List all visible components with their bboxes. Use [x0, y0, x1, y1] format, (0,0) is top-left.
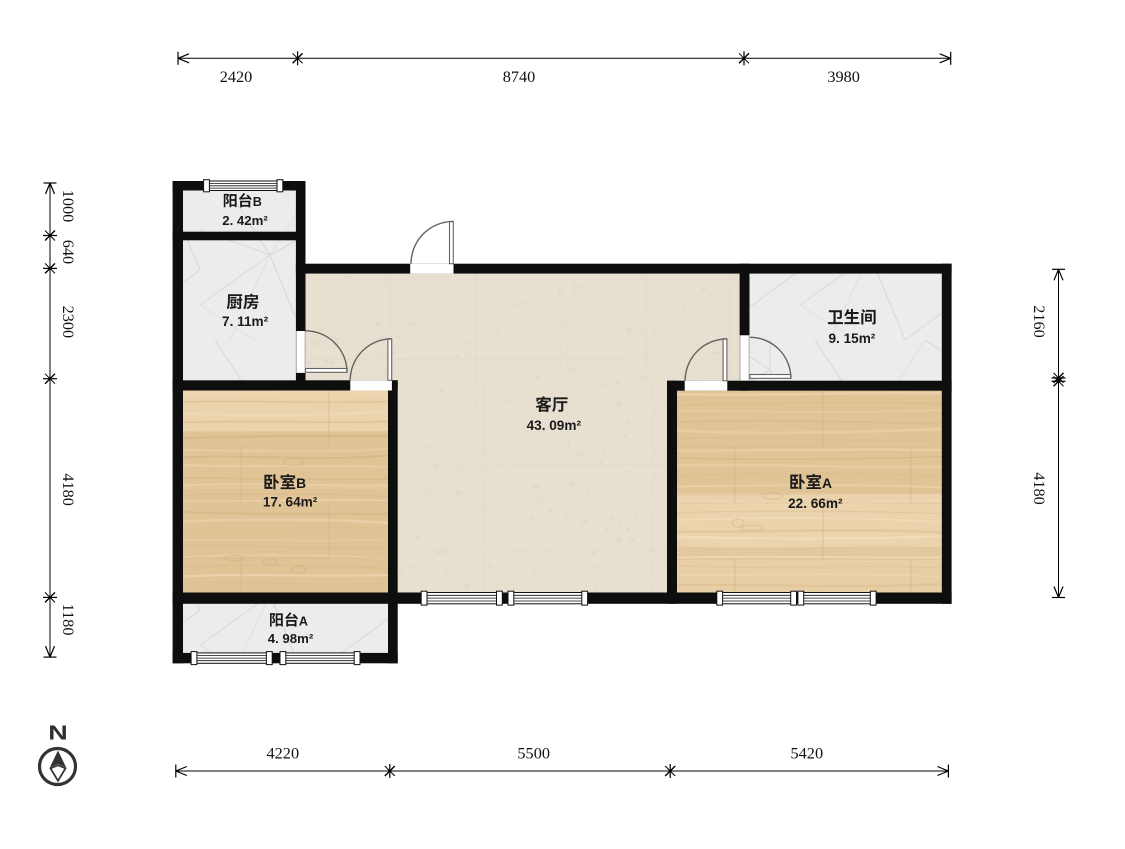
svg-text:N: N	[48, 722, 67, 745]
svg-text:1000: 1000	[59, 190, 78, 223]
svg-text:43. 09m²: 43. 09m²	[527, 418, 582, 433]
svg-text:B: B	[296, 475, 306, 491]
svg-text:5500: 5500	[517, 744, 550, 763]
svg-text:5420: 5420	[791, 744, 824, 763]
svg-text:4220: 4220	[267, 744, 300, 763]
svg-text:4. 98m²: 4. 98m²	[268, 631, 314, 646]
svg-text:2. 42m²: 2. 42m²	[222, 213, 268, 228]
svg-text:4180: 4180	[59, 473, 78, 506]
svg-text:2300: 2300	[59, 306, 78, 339]
svg-text:9. 15m²: 9. 15m²	[828, 331, 875, 346]
svg-text:17. 64m²: 17. 64m²	[263, 494, 318, 509]
svg-text:22. 66m²: 22. 66m²	[788, 496, 843, 511]
svg-text:2160: 2160	[1030, 305, 1049, 338]
svg-text:A: A	[299, 614, 308, 628]
svg-text:7. 11m²: 7. 11m²	[222, 314, 269, 329]
svg-text:640: 640	[59, 240, 78, 264]
svg-text:2420: 2420	[220, 67, 253, 86]
svg-text:4180: 4180	[1030, 472, 1049, 505]
svg-text:B: B	[253, 195, 262, 209]
svg-text:3980: 3980	[827, 67, 860, 86]
svg-text:8740: 8740	[503, 67, 536, 86]
svg-text:A: A	[822, 475, 832, 491]
svg-text:1180: 1180	[59, 604, 78, 636]
